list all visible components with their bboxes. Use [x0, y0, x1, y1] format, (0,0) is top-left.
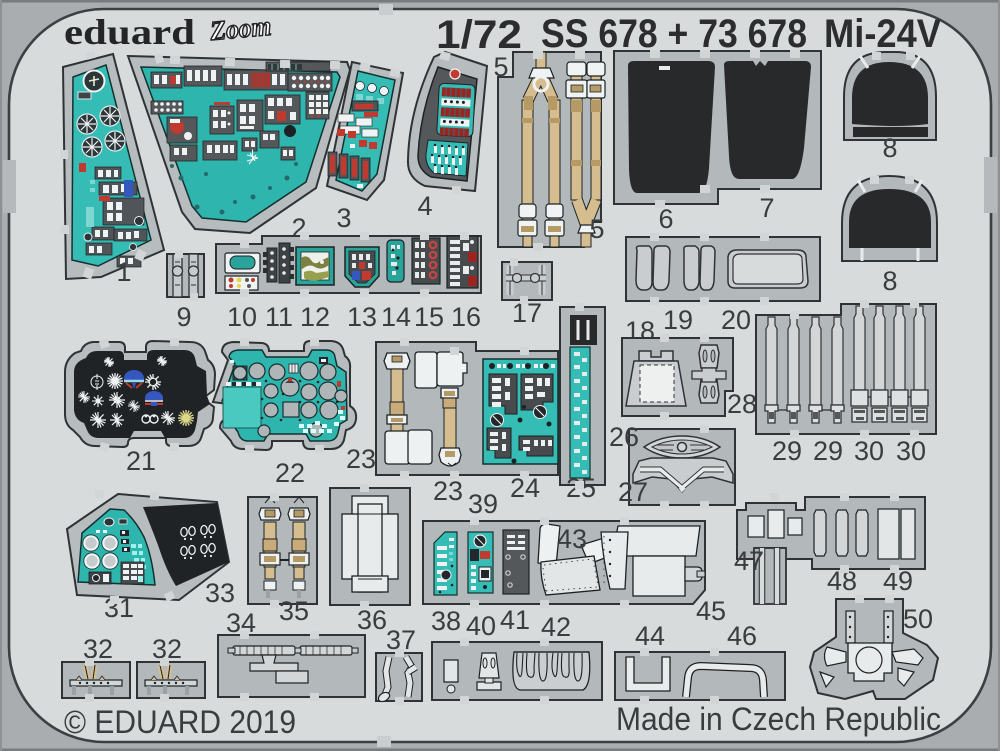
svg-text:29: 29 — [772, 436, 802, 466]
svg-text:40: 40 — [466, 611, 496, 641]
svg-text:13: 13 — [347, 302, 377, 332]
svg-text:5: 5 — [589, 214, 604, 244]
svg-text:4: 4 — [417, 191, 432, 221]
svg-text:30: 30 — [854, 436, 884, 466]
svg-text:39: 39 — [468, 489, 498, 519]
svg-text:8: 8 — [882, 133, 897, 163]
svg-text:9: 9 — [176, 302, 191, 332]
svg-text:45: 45 — [696, 596, 726, 626]
svg-text:38: 38 — [431, 606, 461, 636]
svg-text:Made in Czech Republic: Made in Czech Republic — [616, 701, 941, 737]
svg-text:42: 42 — [541, 612, 571, 642]
svg-text:29: 29 — [813, 436, 843, 466]
svg-text:Mi-24V: Mi-24V — [824, 12, 941, 56]
svg-text:3: 3 — [336, 203, 351, 233]
svg-text:© EDUARD 2019: © EDUARD 2019 — [64, 704, 296, 740]
svg-text:23: 23 — [346, 444, 376, 474]
svg-text:47: 47 — [734, 546, 764, 576]
svg-text:12: 12 — [300, 302, 330, 332]
svg-text:6: 6 — [658, 204, 673, 234]
svg-text:33: 33 — [205, 578, 235, 608]
svg-text:22: 22 — [275, 458, 305, 488]
svg-text:21: 21 — [126, 446, 156, 476]
svg-text:7: 7 — [759, 193, 774, 223]
svg-text:11: 11 — [265, 302, 293, 332]
svg-text:eduard: eduard — [64, 12, 195, 52]
svg-text:19: 19 — [663, 305, 693, 335]
svg-text:30: 30 — [896, 436, 926, 466]
svg-text:16: 16 — [451, 302, 481, 332]
svg-text:41: 41 — [500, 605, 530, 635]
svg-text:35: 35 — [279, 596, 309, 626]
svg-text:50: 50 — [903, 604, 933, 634]
svg-text:26: 26 — [609, 422, 639, 452]
svg-text:5: 5 — [493, 52, 508, 82]
svg-text:36: 36 — [357, 605, 387, 635]
svg-text:15: 15 — [414, 302, 444, 332]
svg-text:1/72: 1/72 — [436, 13, 522, 57]
svg-text:1: 1 — [116, 257, 131, 287]
svg-text:23: 23 — [433, 476, 463, 506]
svg-text:28: 28 — [727, 389, 757, 419]
svg-text:27: 27 — [618, 477, 648, 507]
svg-text:SS 678 + 73 678: SS 678 + 73 678 — [541, 12, 807, 56]
svg-text:10: 10 — [227, 302, 257, 332]
svg-text:43: 43 — [557, 524, 587, 554]
svg-text:8: 8 — [882, 266, 897, 296]
svg-text:46: 46 — [727, 621, 757, 651]
svg-text:Zoom: Zoom — [208, 11, 272, 46]
svg-text:14: 14 — [381, 302, 411, 332]
svg-text:44: 44 — [635, 621, 665, 651]
svg-text:20: 20 — [721, 305, 751, 335]
